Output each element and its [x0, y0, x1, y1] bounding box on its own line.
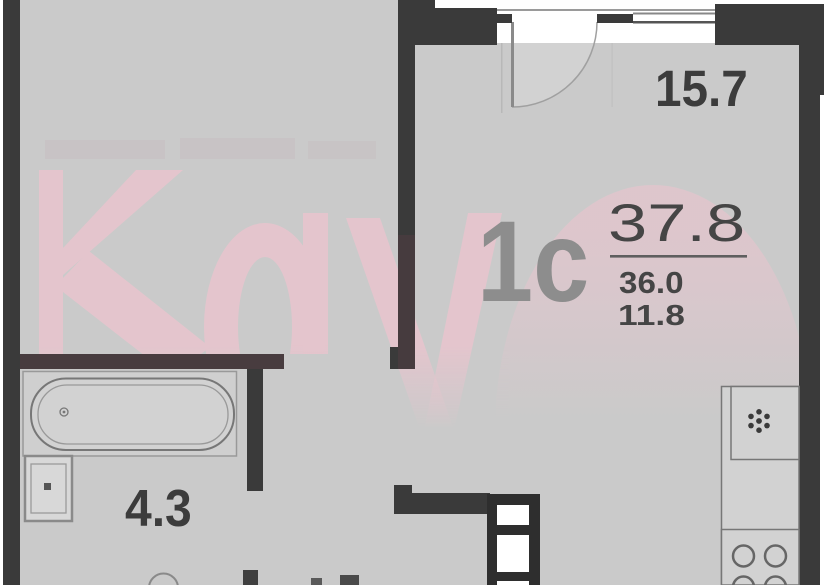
svg-text:1с: 1с [477, 197, 589, 326]
svg-text:37.8: 37.8 [608, 194, 745, 253]
svg-text:36.0: 36.0 [619, 265, 684, 300]
svg-text:15.7: 15.7 [655, 61, 748, 118]
svg-text:11.8: 11.8 [618, 299, 685, 331]
svg-text:4.3: 4.3 [125, 479, 192, 537]
